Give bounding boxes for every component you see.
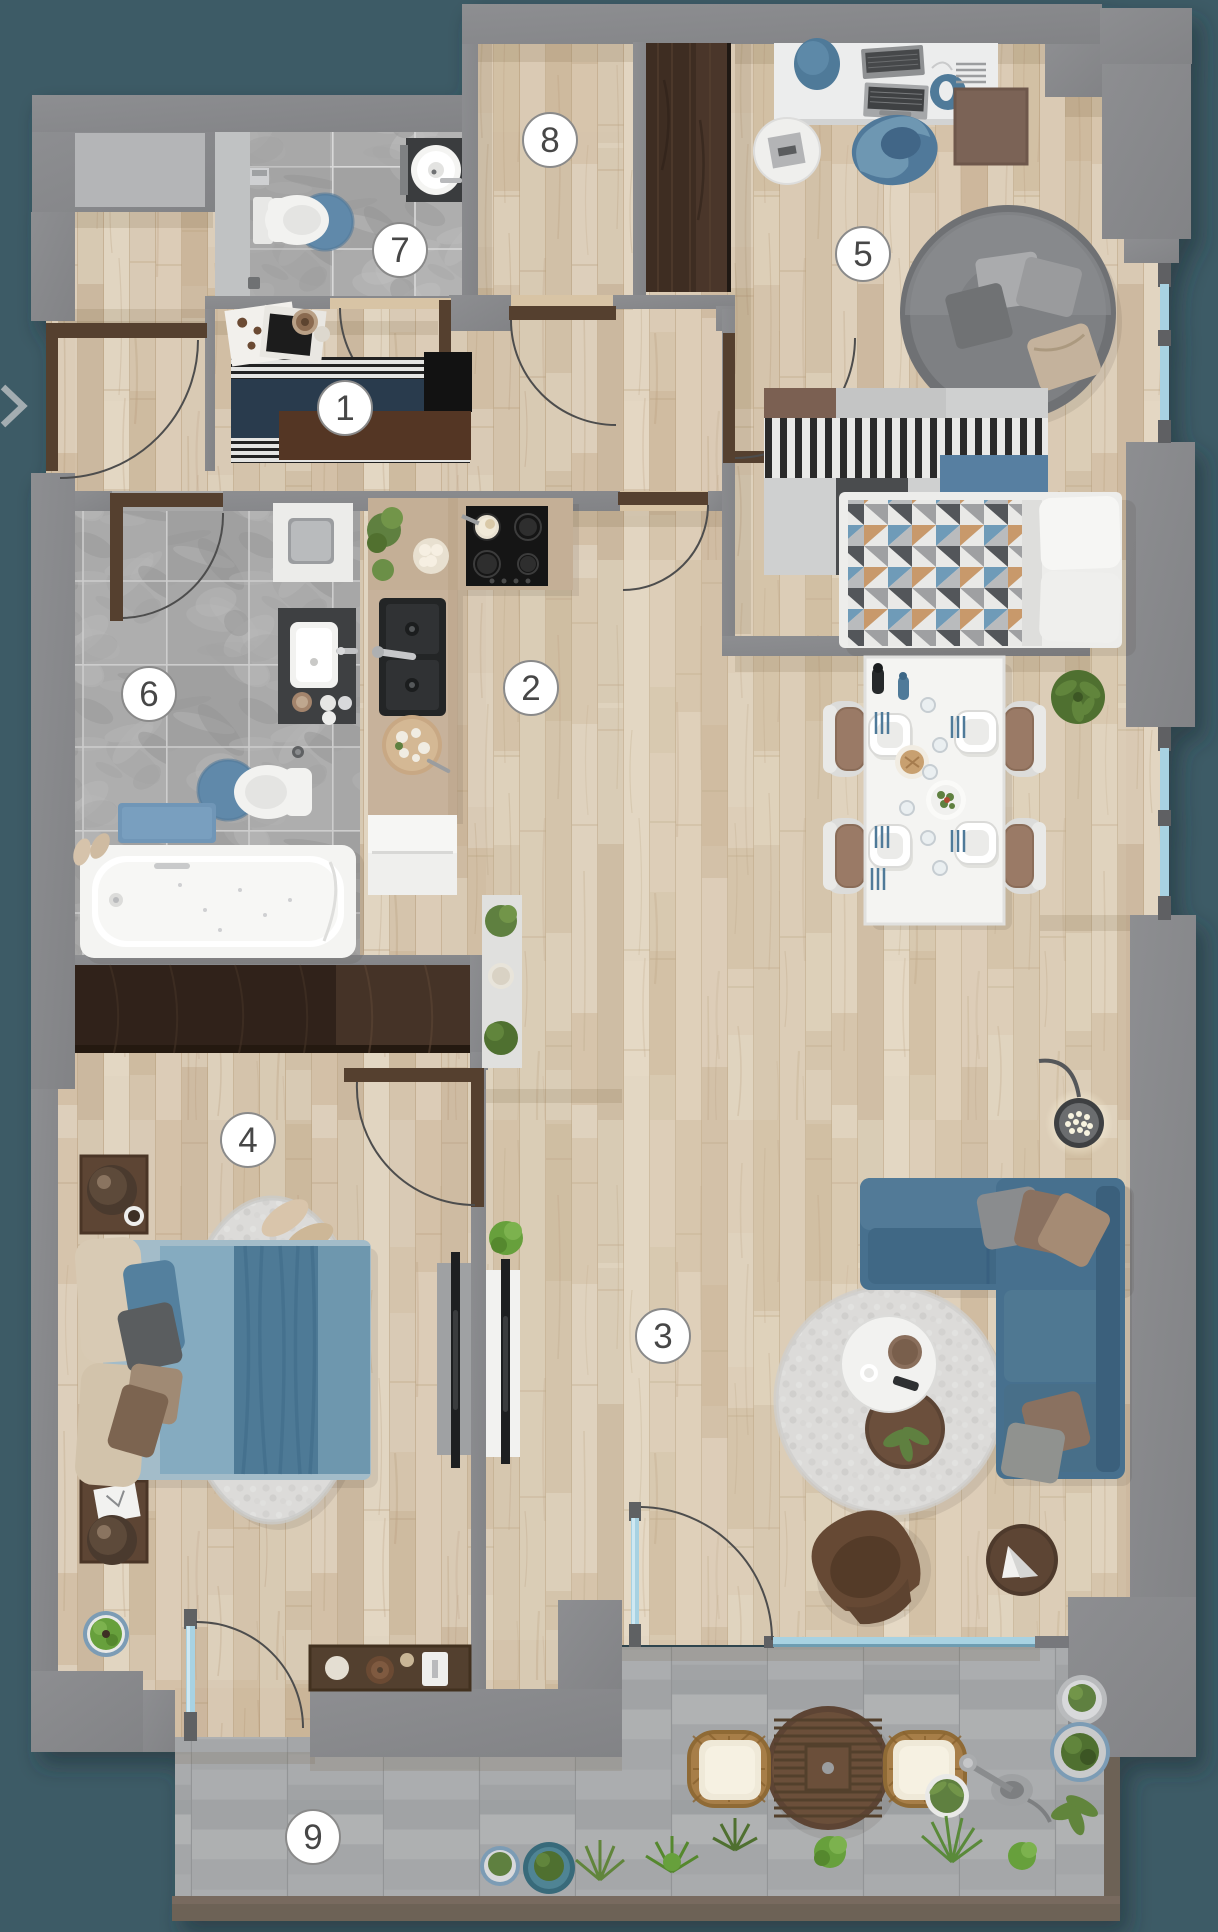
svg-text:6: 6 <box>139 675 158 714</box>
svg-text:3: 3 <box>653 1317 672 1356</box>
svg-text:5: 5 <box>853 235 872 274</box>
svg-text:4: 4 <box>238 1121 257 1160</box>
svg-text:2: 2 <box>521 669 540 708</box>
svg-text:9: 9 <box>303 1818 322 1857</box>
svg-text:7: 7 <box>390 231 409 270</box>
svg-text:1: 1 <box>335 389 354 428</box>
svg-text:8: 8 <box>540 121 559 160</box>
